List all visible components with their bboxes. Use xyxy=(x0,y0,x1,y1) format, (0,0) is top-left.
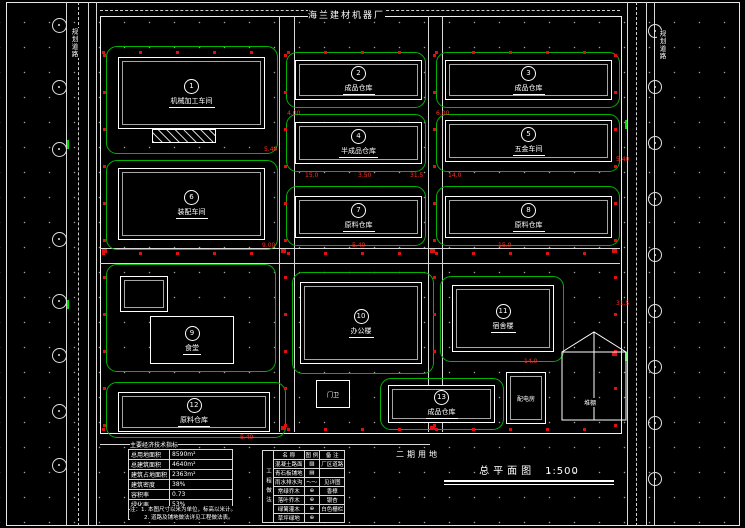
street-tree-icon xyxy=(648,472,662,486)
building-label: 原料仓库 xyxy=(343,220,375,232)
legend-header: 名 称 xyxy=(274,451,305,460)
building-label: 食堂 xyxy=(183,343,201,355)
building-label: 办公楼 xyxy=(349,326,374,338)
building-number-badge: 10 xyxy=(354,309,369,324)
building-12: 12 原料仓库 xyxy=(118,392,270,432)
legend-table: 工程做法 名 称 图 例 备 注 混凝土路面 ▨ 厂区道路 青石板铺地 ▤ 雨水… xyxy=(262,450,345,523)
building-gatehouse: 门卫 xyxy=(316,380,350,408)
right-road-label: 规划道路 xyxy=(657,30,667,60)
building-label: 配电房 xyxy=(517,394,535,403)
legend-symbol: ▨ xyxy=(304,460,320,469)
building-label: 成品仓库 xyxy=(426,407,458,419)
table-row: 容积率 0.73 xyxy=(129,490,233,500)
building-label: 原料仓库 xyxy=(178,415,210,427)
note-line: 注：1. 本图尺寸以米为单位，标高以米计。 xyxy=(130,506,236,514)
street-tree-icon xyxy=(52,294,67,309)
building-inner-outline xyxy=(124,280,164,308)
dimension-text: 9.00 xyxy=(262,242,275,249)
legend-header: 图 例 xyxy=(304,451,320,460)
table-row: 落叶乔木 ⊕ 银杏 xyxy=(263,496,345,505)
building-2: 2 成品仓库 xyxy=(295,60,422,100)
note-line: 2. 道路及铺地做法详见工程做法表。 xyxy=(130,514,236,522)
dimension-text: 31.5 xyxy=(410,172,423,179)
legend-symbol: ⊕ xyxy=(304,496,320,505)
paved-area-hatch xyxy=(152,129,216,143)
green-tick xyxy=(67,140,69,149)
building-substation: 配电房 xyxy=(506,372,546,424)
table-row: 草坪绿地 ⊕ xyxy=(263,514,345,523)
dimension-text: 5.40 xyxy=(616,156,629,163)
dimension-text: 14.0 xyxy=(524,358,537,365)
stats-table-caption: 主要经济技术指标 xyxy=(130,440,178,449)
street-tree-icon xyxy=(648,304,662,318)
legend-remark: 厂区道路 xyxy=(320,460,345,469)
junction-marker xyxy=(612,249,617,253)
building-label: 堆棚 xyxy=(584,398,596,407)
dimension-text: 15.0 xyxy=(498,242,511,249)
legend-remark: 白色栅栏 xyxy=(320,505,345,514)
stat-label: 总建筑面积 xyxy=(129,460,170,470)
street-tree-icon xyxy=(52,18,67,33)
dimension-text: 14.0 xyxy=(448,172,461,179)
road-marker-strip xyxy=(103,54,106,428)
street-tree-icon xyxy=(648,192,662,206)
junction-marker xyxy=(281,426,286,430)
left-road-line2 xyxy=(96,2,97,526)
building-label: 成品仓库 xyxy=(513,83,545,95)
title-block-name: 总平面图 xyxy=(479,462,535,477)
dimension-text: 5.40 xyxy=(264,146,277,153)
building-label: 门卫 xyxy=(327,390,339,399)
legend-name: 青石板铺地 xyxy=(274,469,305,478)
building-11: 11 宿舍楼 xyxy=(452,285,554,352)
legend-remark xyxy=(320,514,345,523)
street-tree-icon xyxy=(52,142,67,157)
building-number-badge: 6 xyxy=(184,190,199,205)
building-label: 原料仓库 xyxy=(513,220,545,232)
notes-block: 注：1. 本图尺寸以米为单位，标高以米计。 2. 道路及铺地做法详见工程做法表。 xyxy=(130,506,236,522)
building-1: 1 机械加工车间 xyxy=(118,57,265,129)
title-underline-thick xyxy=(444,480,614,482)
building-9: 9 食堂 xyxy=(150,316,234,364)
right-road-center-line xyxy=(636,2,637,526)
building-number-badge: 5 xyxy=(521,127,536,142)
building-label: 宿舍楼 xyxy=(491,321,516,333)
internal-road-v1-line xyxy=(279,16,280,432)
stat-label: 建筑密度 xyxy=(129,480,170,490)
dimension-text: 5.40 xyxy=(240,434,253,441)
table-row: 混凝土路面 ▨ 厂区道路 xyxy=(263,460,345,469)
building-number-badge: 3 xyxy=(521,66,536,81)
dimension-text: 6.00 xyxy=(436,110,449,117)
table-row: 总用地面积 8590m² xyxy=(129,450,233,460)
left-road-center-line xyxy=(78,2,79,526)
building-label: 成品仓库 xyxy=(343,83,375,95)
building-label: 五金车间 xyxy=(513,144,545,156)
legend-remark: 见详图 xyxy=(320,478,345,487)
phase2-label: 二期用地 xyxy=(396,449,440,460)
stat-value: 38% xyxy=(170,480,233,490)
stat-value: 8590m² xyxy=(170,450,233,460)
stat-label: 容积率 xyxy=(129,490,170,500)
left-road-line xyxy=(88,2,89,526)
legend-symbol: ▤ xyxy=(304,469,320,478)
building-number-badge: 7 xyxy=(351,203,366,218)
building-number-badge: 13 xyxy=(434,390,449,405)
legend-side-label: 工程做法 xyxy=(263,451,274,523)
dimension-text: 3.50 xyxy=(358,172,371,179)
legend-remark: 银杏 xyxy=(320,496,345,505)
street-tree-icon xyxy=(648,416,662,430)
left-road-label: 规划道路 xyxy=(69,28,79,58)
drawing-title: 海兰建材机器厂 xyxy=(308,8,385,21)
legend-name: 绿篱灌木 xyxy=(274,505,305,514)
table-row: 绿篱灌木 ⊕ 白色栅栏 xyxy=(263,505,345,514)
table-row: 总建筑面积 4640m² xyxy=(129,460,233,470)
title-block: 总平面图 1:500 xyxy=(444,462,614,485)
street-tree-icon xyxy=(648,248,662,262)
building-number-badge: 11 xyxy=(496,304,511,319)
street-tree-icon xyxy=(648,136,662,150)
dimension-text: 5.40 xyxy=(352,242,365,249)
street-tree-icon xyxy=(648,360,662,374)
table-row: 青石板铺地 ▤ xyxy=(263,469,345,478)
legend-name: 混凝土路面 xyxy=(274,460,305,469)
green-tick xyxy=(625,120,627,129)
road-marker-strip xyxy=(102,51,618,54)
building-7: 7 原料仓库 xyxy=(295,196,422,238)
road-marker-strip xyxy=(102,252,618,255)
site-plan-canvas: 海兰建材机器厂 规划道路 规划道路 xyxy=(0,0,745,528)
building-number-badge: 1 xyxy=(184,79,199,94)
legend-name: 雨水排水沟 xyxy=(274,478,305,487)
legend-symbol: ⊕ xyxy=(304,505,320,514)
legend-remark xyxy=(320,469,345,478)
table-row: 建筑密度 38% xyxy=(129,480,233,490)
stat-value: 0.73 xyxy=(170,490,233,500)
building-10: 10 办公楼 xyxy=(300,282,422,364)
left-road-edge-line xyxy=(66,2,67,526)
green-tick xyxy=(67,300,69,309)
stat-value: 2363m² xyxy=(170,470,233,480)
building-number-badge: 8 xyxy=(521,203,536,218)
table-row: 常绿乔木 ⊕ 香樟 xyxy=(263,487,345,496)
building-number-badge: 2 xyxy=(351,66,366,81)
table-row: 工程做法 名 称 图 例 备 注 xyxy=(263,451,345,460)
building-label: 机械加工车间 xyxy=(169,96,215,108)
junction-marker xyxy=(430,249,435,253)
table-row: 建筑占地面积 2363m² xyxy=(129,470,233,480)
building-3: 3 成品仓库 xyxy=(445,60,612,100)
legend-name: 落叶乔木 xyxy=(274,496,305,505)
building-number-badge: 12 xyxy=(187,398,202,413)
legend-header: 备 注 xyxy=(320,451,345,460)
title-block-scale: 1:500 xyxy=(545,466,579,477)
building-label: 半成品仓库 xyxy=(339,146,378,158)
title-underline-thin xyxy=(444,484,614,485)
legend-name: 常绿乔木 xyxy=(274,487,305,496)
building-13: 13 成品仓库 xyxy=(388,385,495,423)
dimension-text: 15.0 xyxy=(305,172,318,179)
junction-marker xyxy=(281,249,286,253)
building-6: 6 装配车间 xyxy=(118,168,265,240)
stat-label: 建筑占地面积 xyxy=(129,470,170,480)
building-number-badge: 4 xyxy=(351,129,366,144)
table-row: 雨水排水沟 〜〜 见详图 xyxy=(263,478,345,487)
legend-symbol: ⊕ xyxy=(304,514,320,523)
legend-name: 草坪绿地 xyxy=(274,514,305,523)
building-shed-gable xyxy=(560,328,628,424)
legend-remark: 香樟 xyxy=(320,487,345,496)
right-road-edge-line xyxy=(627,2,628,526)
building-4: 4 半成品仓库 xyxy=(295,122,422,164)
stat-label: 总用地面积 xyxy=(129,450,170,460)
street-tree-icon xyxy=(52,404,67,419)
street-tree-icon xyxy=(52,80,67,95)
junction-marker xyxy=(430,426,435,430)
legend-symbol: 〜〜 xyxy=(304,478,320,487)
street-tree-icon xyxy=(648,80,662,94)
stat-value: 4640m² xyxy=(170,460,233,470)
building-number-badge: 9 xyxy=(185,326,200,341)
building-label: 装配车间 xyxy=(176,207,208,219)
right-road-line xyxy=(646,2,647,526)
dimension-text: 4.00 xyxy=(287,110,300,117)
building-8: 8 原料仓库 xyxy=(445,196,612,238)
legend-symbol: ⊕ xyxy=(304,487,320,496)
street-tree-icon xyxy=(52,232,67,247)
street-tree-icon xyxy=(52,458,67,473)
building-small-annex xyxy=(120,276,168,312)
building-5: 5 五金车间 xyxy=(445,120,612,162)
street-tree-icon xyxy=(52,348,67,363)
junction-marker xyxy=(102,249,107,253)
dimension-text: 31.5 xyxy=(616,300,629,307)
